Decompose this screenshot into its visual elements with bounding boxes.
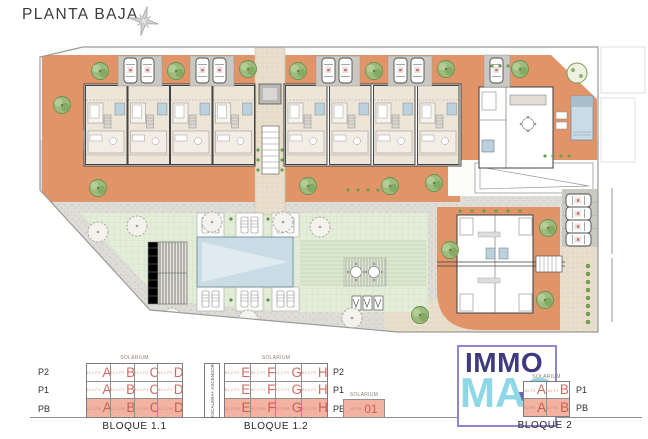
unit-code: B1.1 PB	[158, 406, 172, 411]
unit-code: B1.1 P2	[87, 370, 101, 375]
floor-label: P1	[576, 385, 596, 395]
unit-cell: B1.2 P2E	[225, 364, 251, 382]
unit-code: B1.1 P2	[158, 370, 172, 375]
unit-cell: B1.1 P2C	[135, 364, 159, 382]
communal-pool	[197, 237, 293, 287]
unit-letter: G	[292, 366, 302, 380]
bloque-1-1-building	[84, 84, 255, 166]
unit-letter: C	[150, 401, 158, 415]
unit-code: B1.1 P1	[87, 388, 101, 393]
floor-label: PB	[576, 403, 596, 413]
central-walkway	[255, 47, 285, 215]
unit-code: B1.2 PB	[225, 406, 240, 411]
unit-cell: B1.1 P2B	[111, 364, 135, 382]
unit-code: B1.2 PB	[276, 406, 290, 411]
unit-code: B2 PB	[351, 406, 362, 411]
unit-letter: E	[241, 366, 250, 380]
bloque-1-2-building	[284, 84, 461, 166]
pergola-bbq	[344, 258, 386, 286]
bloque11-title: BLOQUE 1.1	[86, 421, 183, 432]
unit-letter: A	[103, 401, 111, 415]
unit-letter: D	[174, 383, 182, 397]
stairs-elevator-box: ESCALERA+ ASCENSOR	[204, 363, 220, 418]
bloque11-matrix: B1.1 P2A B1.1 P2B B1.1 P2C B1.1 P2D B1.1…	[86, 363, 183, 418]
unit-letter: B	[126, 366, 134, 380]
unit-letter: E	[242, 401, 251, 415]
unit-cell: B1.1 P1C	[135, 382, 159, 400]
unit-letter: G	[292, 383, 302, 397]
floor-label: P2	[333, 367, 353, 377]
unit-cell: B1.2 P1H	[302, 382, 328, 400]
unit-code: B2 P1	[547, 388, 558, 393]
solarium-label-b2: SOLARIUM	[523, 374, 570, 380]
unit-letter: D	[174, 366, 182, 380]
stairs-label: ESCALERA+ ASCENSOR	[210, 364, 215, 418]
unit-letter: A	[102, 366, 110, 380]
unit-code: B1.2 PB	[251, 406, 266, 411]
unit-cell: B1.1 P2D	[158, 364, 182, 382]
benches	[352, 296, 383, 310]
floor-label: P2	[38, 367, 58, 377]
unit-letter: B	[560, 383, 569, 397]
unit-code: B2 PB	[547, 405, 558, 410]
unit-cell: B1.1 P1B	[111, 382, 135, 400]
solarium-label-b12: SOLARIUM	[224, 355, 328, 361]
unit-letter: H	[318, 366, 327, 380]
unit-letter: A	[537, 383, 546, 397]
unit-code: B1.2 P1	[276, 388, 290, 393]
unit-letter: E	[241, 383, 250, 397]
unit-code: B1.2 P2	[276, 370, 290, 375]
unit-letter: A	[102, 383, 110, 397]
unit-code: B1.2 P1	[225, 388, 239, 393]
unit-cell: B1.2 P1G	[276, 382, 302, 400]
unit-letter: A	[537, 401, 546, 415]
solarium-unit-01: B2 PB 01	[343, 399, 385, 418]
unit-cell-highlighted: B2 PBB	[547, 399, 570, 416]
unit-code: B1.2 P1	[302, 388, 316, 393]
unit-letter: F	[267, 366, 275, 380]
unit-code: B2 P1	[524, 388, 535, 393]
unit-code: B1.1 P1	[158, 388, 172, 393]
unit-cell-highlighted: B1.1 PBD	[158, 399, 182, 417]
unit-code: B2 PB	[524, 405, 535, 410]
unit-cell-highlighted: B2 PBA	[524, 399, 547, 416]
unit-code: B1.2 PB	[302, 406, 317, 411]
unit-code: B1.2 P2	[302, 370, 316, 375]
unit-letter: H	[318, 401, 327, 415]
unit-number: 01	[364, 403, 377, 415]
unit-cell: B1.2 P2H	[302, 364, 328, 382]
unit-cell-highlighted: B1.1 PBC	[135, 399, 159, 417]
unit-cell: B2 P1B	[547, 382, 570, 399]
unit-code: B1.1 P2	[111, 370, 125, 375]
unit-cell-highlighted: B1.1 PBA	[87, 399, 111, 417]
floor-label: P1	[38, 385, 58, 395]
bloque2-title: BLOQUE 2	[505, 420, 585, 431]
unit-cell: B1.2 P2F	[251, 364, 277, 382]
unit-letter: H	[318, 383, 327, 397]
unit-cell: B2 P1A	[524, 382, 547, 399]
bloque12-title: BLOQUE 1.2	[224, 421, 328, 432]
unit-cell: B1.1 P1A	[87, 382, 111, 400]
unit-code: B1.1 P2	[135, 370, 148, 375]
unit-letter: G	[292, 401, 302, 415]
unit-cell: B1.2 P1F	[251, 382, 277, 400]
unit-cell-highlighted: B1.2 PBH	[302, 399, 328, 417]
unit-letter: B	[126, 401, 134, 415]
unit-letter: C	[150, 383, 159, 397]
unit-letter: C	[150, 366, 159, 380]
unit-cell-highlighted: B1.2 PBE	[225, 399, 251, 417]
unit-letter: F	[267, 383, 275, 397]
unit-cell: B1.1 P2A	[87, 364, 111, 382]
unit-cell-highlighted: B1.1 PBB	[111, 399, 135, 417]
floor-labels-b2: P1 PB	[576, 381, 596, 417]
floor-label: PB	[38, 404, 58, 414]
bloque12-matrix: B1.2 P2E B1.2 P2F B1.2 P2G B1.2 P2H B1.2…	[224, 363, 328, 418]
unit-cell: B1.1 P1D	[158, 382, 182, 400]
neighbour-plots	[601, 47, 645, 322]
floor-labels-b11: P2 P1 PB	[38, 363, 58, 418]
unit-code: B1.2 P2	[251, 370, 265, 375]
unit-cell-highlighted: B1.2 PBF	[251, 399, 277, 417]
unit-code: B1.2 P1	[251, 388, 265, 393]
unit-code: B1.1 P1	[135, 388, 148, 393]
unit-letter: F	[267, 401, 275, 415]
solarium-label-b11: SOLARIUM	[86, 355, 183, 361]
unit-code: B1.1 PB	[135, 406, 148, 411]
unit-cell: B1.2 P2G	[276, 364, 302, 382]
solarium-label-01: SOLARIUM	[341, 392, 387, 398]
unit-cell-highlighted: B1.2 PBG	[276, 399, 302, 417]
unit-code: B1.1 PB	[111, 406, 125, 411]
unit-letter: B	[126, 383, 134, 397]
unit-letter: B	[560, 401, 569, 415]
unit-code: B1.1 P1	[111, 388, 125, 393]
planta-baja-sheet: PLANTA BAJA	[0, 0, 648, 439]
unit-letter: D	[174, 401, 182, 415]
unit-code: B1.1 PB	[87, 406, 101, 411]
unit-cell: B1.2 P1E	[225, 382, 251, 400]
bloque2-matrix: B2 P1A B2 P1B B2 PBA B2 PBB	[523, 381, 570, 417]
unit-code: B1.2 P2	[225, 370, 239, 375]
